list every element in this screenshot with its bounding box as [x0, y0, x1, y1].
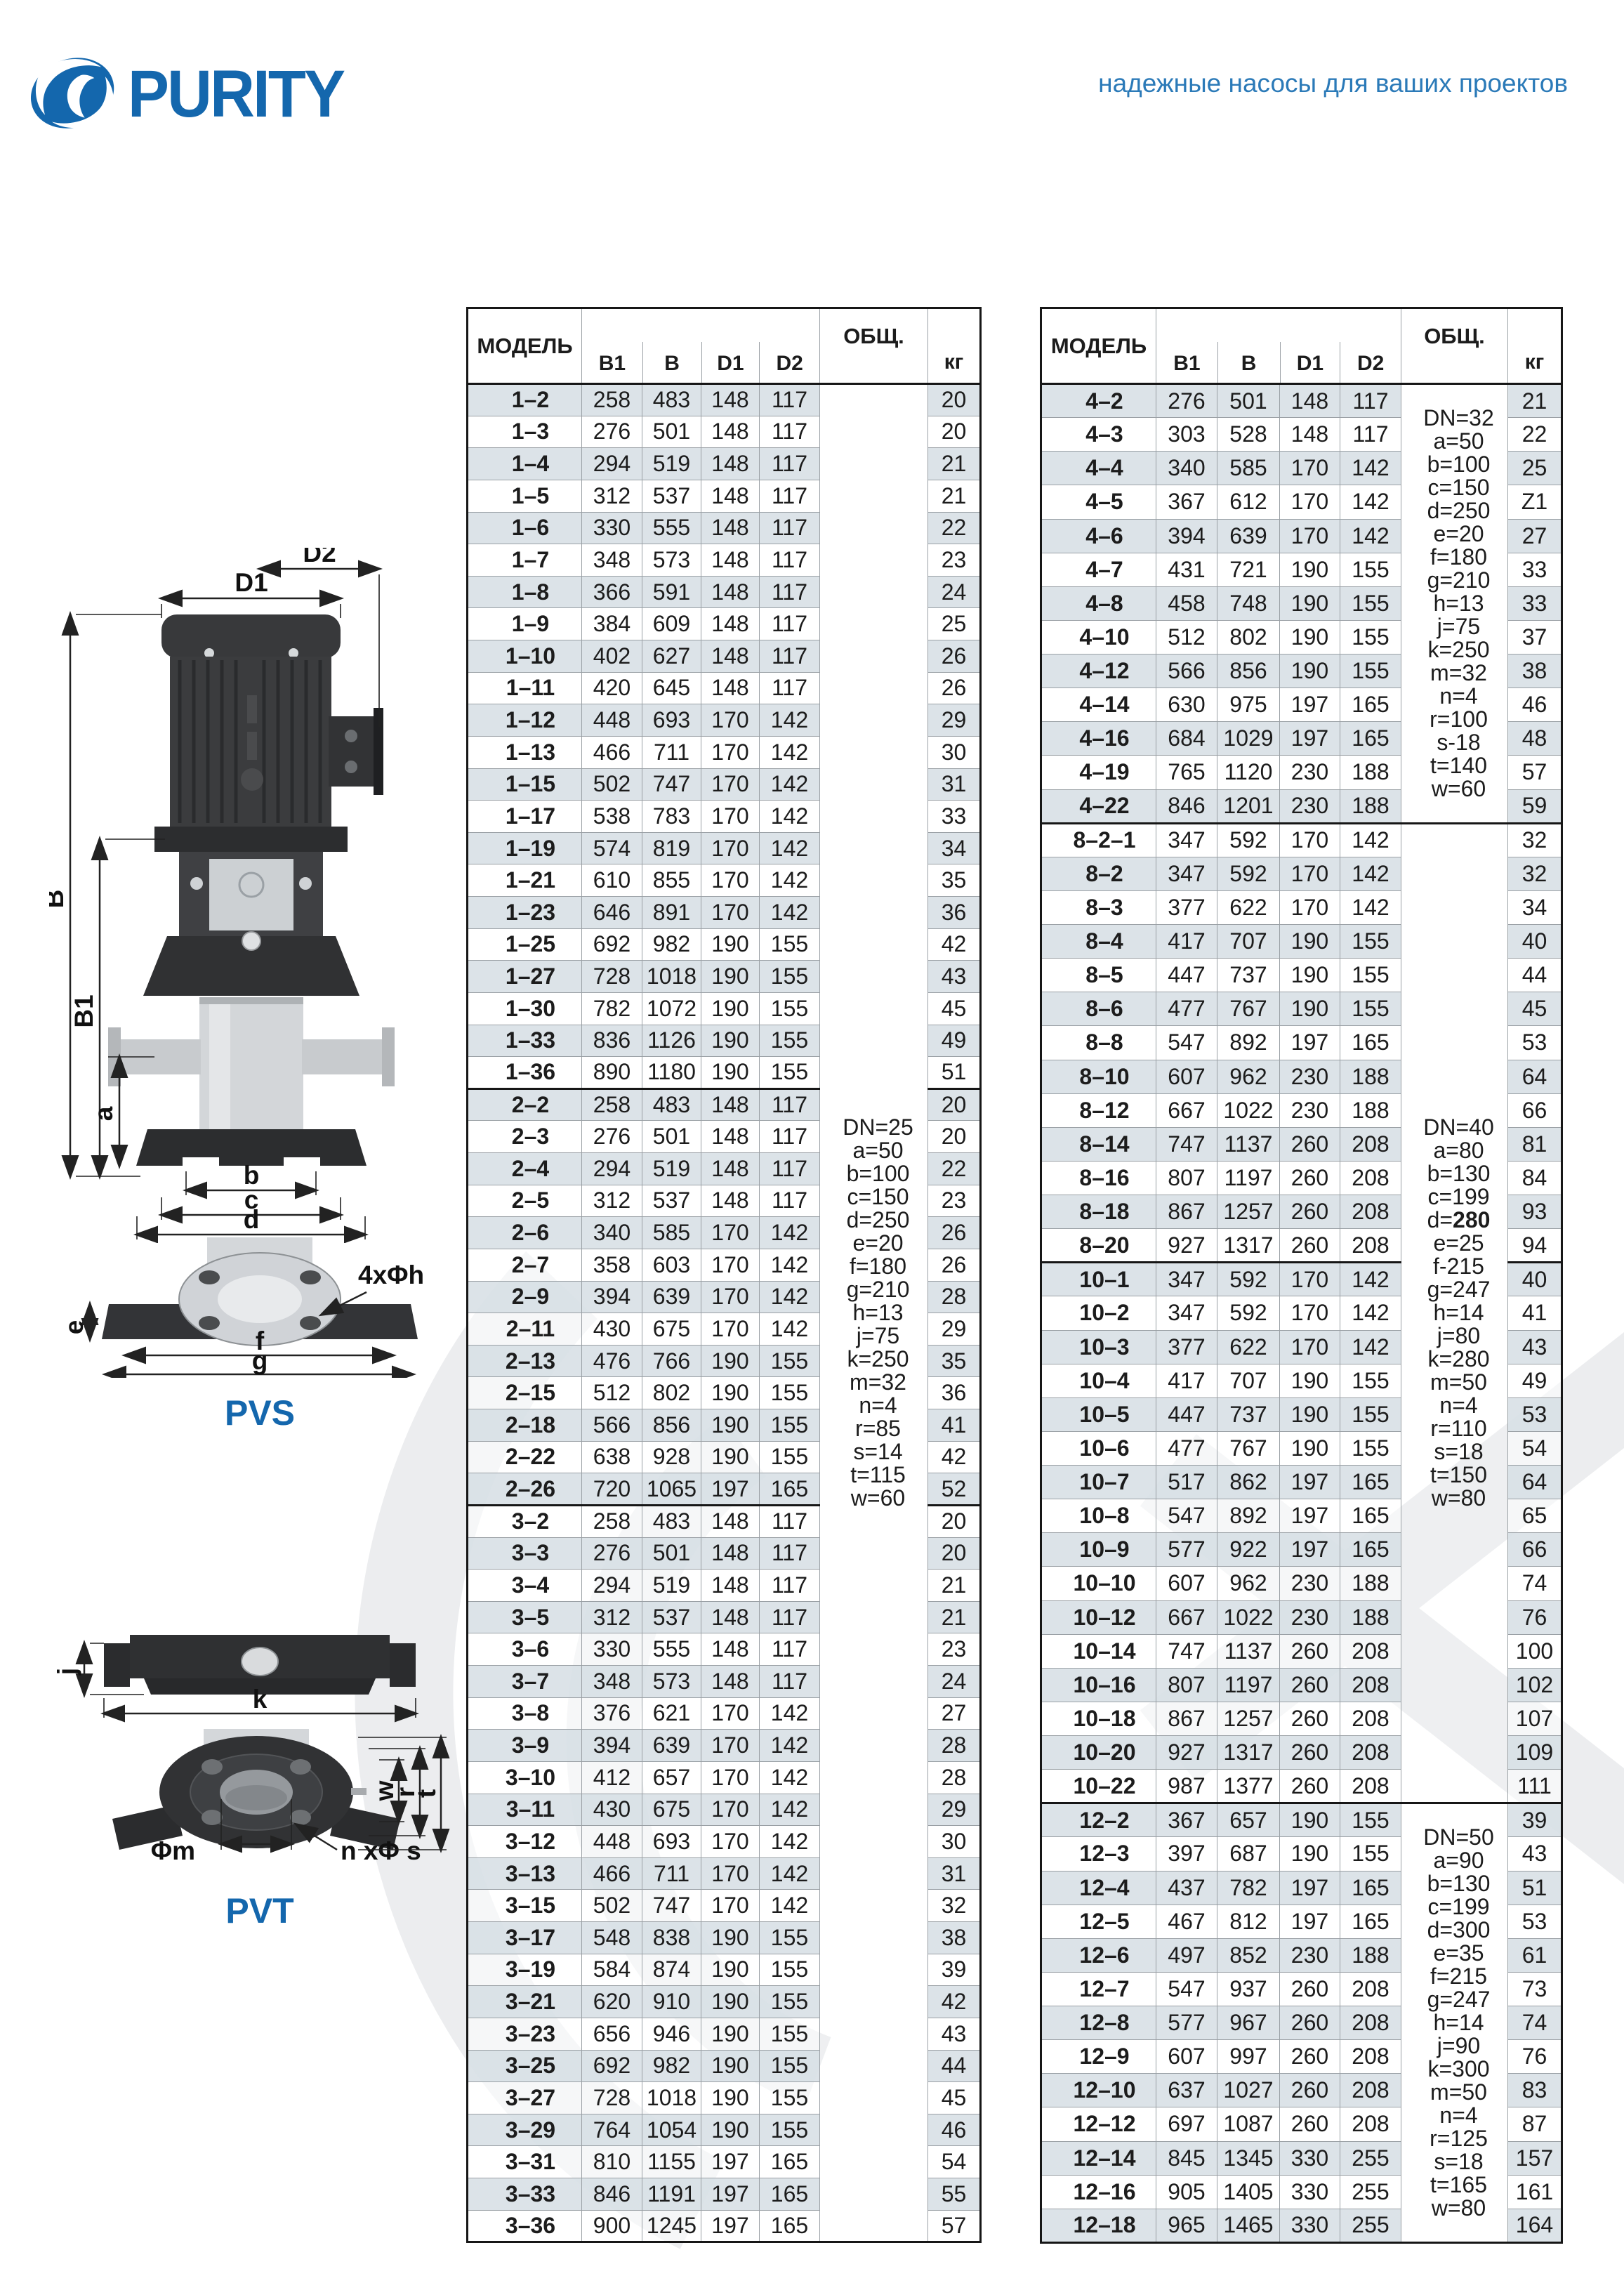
value-cell: 384 — [582, 608, 642, 640]
model-cell: 10–3 — [1041, 1330, 1156, 1364]
value-cell: 782 — [1217, 1871, 1280, 1905]
value-cell: 900 — [582, 2210, 642, 2242]
value-cell: 190 — [701, 928, 760, 961]
value-cell: 946 — [642, 2018, 701, 2050]
value-cell: 637 — [1156, 2074, 1217, 2107]
obsh-line: e=20 — [1401, 522, 1507, 546]
value-cell: 142 — [1340, 452, 1401, 485]
model-cell: 10–4 — [1041, 1364, 1156, 1397]
value-cell: 417 — [1156, 925, 1217, 959]
value-cell: 258 — [582, 384, 642, 416]
value-cell: 148 — [701, 1153, 760, 1185]
model-cell: 1–8 — [468, 576, 582, 608]
value-cell: 148 — [701, 480, 760, 512]
value-cell: 148 — [701, 1666, 760, 1698]
model-cell: 1–13 — [468, 736, 582, 768]
value-cell: 856 — [642, 1409, 701, 1442]
obsh-line: b=100 — [820, 1162, 927, 1185]
value-cell: 584 — [582, 1954, 642, 1986]
value-cell: 609 — [642, 608, 701, 640]
value-cell: 255 — [1340, 2175, 1401, 2209]
kg-cell: 29 — [928, 704, 981, 737]
kg-cell: 107 — [1508, 1702, 1562, 1735]
kg-cell: 26 — [928, 1249, 981, 1281]
table-row: 12–2367657190155DN=50a=90b=130c=199d=300… — [1041, 1803, 1562, 1837]
kg-cell: 161 — [1508, 2175, 1562, 2209]
value-cell: 448 — [582, 1826, 642, 1858]
value-cell: 260 — [1280, 1161, 1340, 1195]
obsh-line: d=300 — [1401, 1919, 1507, 1942]
value-cell: 1027 — [1217, 2074, 1280, 2107]
header-kg: кг — [1508, 308, 1562, 384]
model-cell: 8–18 — [1041, 1195, 1156, 1229]
value-cell: 767 — [1217, 1431, 1280, 1465]
value-cell: 1065 — [642, 1473, 701, 1506]
value-cell: 639 — [642, 1281, 701, 1313]
value-cell: 905 — [1156, 2175, 1217, 2209]
kg-cell: 93 — [1508, 1195, 1562, 1229]
kg-cell: 32 — [1508, 857, 1562, 890]
value-cell: 148 — [701, 1601, 760, 1633]
value-cell: 117 — [760, 640, 820, 673]
kg-cell: 35 — [928, 1345, 981, 1377]
value-cell: 165 — [760, 1473, 820, 1506]
value-cell: 547 — [1156, 1499, 1217, 1533]
model-cell: 4–2 — [1041, 384, 1156, 418]
value-cell: 197 — [701, 1473, 760, 1506]
value-cell: 630 — [1156, 688, 1217, 722]
value-cell: 517 — [1156, 1466, 1217, 1499]
value-cell: 646 — [582, 897, 642, 929]
pvs-caption: PVS — [49, 1393, 470, 1433]
model-cell: 1–17 — [468, 801, 582, 833]
value-cell: 155 — [1340, 553, 1401, 586]
kg-cell: 111 — [1508, 1770, 1562, 1803]
obsh-line: t=115 — [820, 1463, 927, 1487]
value-cell: 197 — [701, 2210, 760, 2242]
value-cell: 856 — [1217, 654, 1280, 688]
value-cell: 477 — [1156, 1431, 1217, 1465]
value-cell: 891 — [642, 897, 701, 929]
value-cell: 566 — [582, 1409, 642, 1442]
value-cell: 197 — [1280, 722, 1340, 756]
kg-cell: 83 — [1508, 2074, 1562, 2107]
model-cell: 12–7 — [1041, 1972, 1156, 2006]
value-cell: 190 — [701, 1025, 760, 1057]
value-cell: 312 — [582, 480, 642, 512]
value-cell: 585 — [642, 1217, 701, 1249]
value-cell: 347 — [1156, 1296, 1217, 1330]
model-cell: 1–23 — [468, 897, 582, 929]
brand-logo: PURITY — [27, 55, 359, 133]
value-cell: 627 — [642, 640, 701, 673]
value-cell: 117 — [760, 672, 820, 704]
value-cell: 997 — [1217, 2040, 1280, 2074]
value-cell: 117 — [760, 1505, 820, 1537]
value-cell: 117 — [760, 608, 820, 640]
value-cell: 170 — [701, 704, 760, 737]
value-cell: 188 — [1340, 756, 1401, 789]
value-cell: 477 — [1156, 992, 1217, 1026]
value-cell: 208 — [1340, 1668, 1401, 1702]
obsh-line: a=80 — [1401, 1139, 1507, 1162]
value-cell: 684 — [1156, 722, 1217, 756]
model-cell: 12–14 — [1041, 2141, 1156, 2175]
value-cell: 483 — [642, 1505, 701, 1537]
model-cell: 8–12 — [1041, 1093, 1156, 1127]
value-cell: 155 — [1340, 1431, 1401, 1465]
discharge-flange — [382, 1027, 395, 1086]
value-cell: 190 — [701, 1922, 760, 1954]
value-cell: 766 — [642, 1345, 701, 1377]
value-cell: 117 — [1340, 384, 1401, 418]
kg-cell: 100 — [1508, 1634, 1562, 1668]
value-cell: 230 — [1280, 789, 1340, 823]
value-cell: 260 — [1280, 1702, 1340, 1735]
obsh-line: m=32 — [1401, 662, 1507, 685]
obsh-line: r=125 — [1401, 2127, 1507, 2150]
value-cell: 155 — [760, 1057, 820, 1089]
header-b: B — [642, 342, 701, 383]
dim-label-bolt-holes-pvs: 4xΦh — [358, 1261, 424, 1289]
obsh-line: h=13 — [820, 1301, 927, 1324]
value-cell: 165 — [1340, 688, 1401, 722]
value-cell: 402 — [582, 640, 642, 673]
obsh-line: r=110 — [1401, 1417, 1507, 1440]
value-cell: 230 — [1280, 1060, 1340, 1093]
header-d2: D2 — [1340, 342, 1401, 383]
kg-cell: 22 — [928, 1153, 981, 1185]
dim-label-a: a — [89, 1106, 118, 1121]
kg-cell: 21 — [928, 1570, 981, 1602]
kg-cell: 27 — [1508, 519, 1562, 553]
value-cell: 155 — [760, 1409, 820, 1442]
value-cell: 330 — [1280, 2175, 1340, 2209]
value-cell: 230 — [1280, 1567, 1340, 1600]
value-cell: 721 — [1217, 553, 1280, 586]
value-cell: 312 — [582, 1601, 642, 1633]
value-cell: 747 — [1156, 1127, 1217, 1161]
value-cell: 967 — [1217, 2006, 1280, 2040]
table-header-row: МОДЕЛЬB1BD1D2ОБЩ.кг — [1041, 308, 1562, 384]
kg-cell: 28 — [928, 1761, 981, 1794]
model-cell: 8–20 — [1041, 1229, 1156, 1263]
value-cell: 340 — [582, 1217, 642, 1249]
value-cell: 692 — [582, 2050, 642, 2082]
value-cell: 190 — [1280, 959, 1340, 992]
value-cell: 303 — [1156, 418, 1217, 452]
value-cell: 1257 — [1217, 1702, 1280, 1735]
header-kg: кг — [928, 308, 981, 384]
value-cell: 170 — [701, 1313, 760, 1346]
obsh-line: k=250 — [820, 1348, 927, 1371]
obsh-line: h=13 — [1401, 592, 1507, 615]
value-cell: 330 — [1280, 2141, 1340, 2175]
kg-cell: 53 — [1508, 1905, 1562, 1938]
table-header-row: МОДЕЛЬB1BD1D2ОБЩ.кг — [468, 308, 981, 384]
model-cell: 2–9 — [468, 1281, 582, 1313]
kg-cell: 32 — [1508, 823, 1562, 857]
value-cell: 645 — [642, 672, 701, 704]
value-cell: 230 — [1280, 1093, 1340, 1127]
value-cell: 573 — [642, 1666, 701, 1698]
value-cell: 747 — [642, 768, 701, 801]
dim-label-d: d — [244, 1205, 260, 1234]
value-cell: 607 — [1156, 1060, 1217, 1093]
model-cell: 1–4 — [468, 448, 582, 480]
value-cell: 1201 — [1217, 789, 1280, 823]
kg-cell: 46 — [928, 2114, 981, 2146]
value-cell: 208 — [1340, 2006, 1401, 2040]
value-cell: 142 — [760, 897, 820, 929]
model-cell: 8–4 — [1041, 925, 1156, 959]
value-cell: 431 — [1156, 553, 1217, 586]
kg-cell: 42 — [928, 928, 981, 961]
obsh-line: DN=40 — [1401, 1116, 1507, 1139]
kg-cell: 87 — [1508, 2107, 1562, 2141]
obsh-line: s=18 — [1401, 1440, 1507, 1463]
value-cell: 155 — [1340, 992, 1401, 1026]
value-cell: 170 — [701, 832, 760, 864]
value-cell: 165 — [1340, 722, 1401, 756]
value-cell: 170 — [701, 1826, 760, 1858]
model-cell: 3–5 — [468, 1601, 582, 1633]
dim-label-b-height: B — [49, 890, 69, 909]
model-cell: 8–6 — [1041, 992, 1156, 1026]
value-cell: 962 — [1217, 1060, 1280, 1093]
model-cell: 4–14 — [1041, 688, 1156, 722]
kg-cell: 38 — [928, 1922, 981, 1954]
model-cell: 2–5 — [468, 1185, 582, 1217]
model-cell: 10–16 — [1041, 1668, 1156, 1702]
model-cell: 10–9 — [1041, 1533, 1156, 1567]
kg-cell: 53 — [1508, 1397, 1562, 1431]
value-cell: 622 — [1217, 1330, 1280, 1364]
value-cell: 1022 — [1217, 1093, 1280, 1127]
model-cell: 8–3 — [1041, 890, 1156, 924]
model-cell: 2–4 — [468, 1153, 582, 1185]
value-cell: 928 — [642, 1441, 701, 1473]
value-cell: 394 — [582, 1281, 642, 1313]
obsh-line: g=247 — [1401, 1278, 1507, 1301]
kg-cell: 41 — [1508, 1296, 1562, 1330]
kg-cell: 21 — [928, 448, 981, 480]
header-model: МОДЕЛЬ — [468, 308, 582, 384]
value-cell: 190 — [701, 2114, 760, 2146]
value-cell: 117 — [760, 448, 820, 480]
obsh-line: r=85 — [820, 1417, 927, 1440]
value-cell: 190 — [701, 1409, 760, 1442]
value-cell: 190 — [701, 1441, 760, 1473]
kg-cell: 48 — [1508, 722, 1562, 756]
value-cell: 1191 — [642, 2178, 701, 2211]
value-cell: 208 — [1340, 2074, 1401, 2107]
value-cell: 538 — [582, 801, 642, 833]
value-cell: 812 — [1217, 1905, 1280, 1938]
obsh-line: f-215 — [1401, 1255, 1507, 1278]
value-cell: 639 — [1217, 519, 1280, 553]
pvt-flange-diagram: Φm n xΦ s w r t — [49, 1729, 470, 1880]
value-cell: 502 — [582, 768, 642, 801]
value-cell: 657 — [1217, 1803, 1280, 1837]
value-cell: 142 — [760, 864, 820, 897]
value-cell: 170 — [701, 1281, 760, 1313]
value-cell: 260 — [1280, 2040, 1340, 2074]
value-cell: 155 — [1340, 1397, 1401, 1431]
value-cell: 170 — [701, 1730, 760, 1762]
value-cell: 846 — [1156, 789, 1217, 823]
value-cell: 155 — [760, 1986, 820, 2018]
value-cell: 165 — [1340, 1466, 1401, 1499]
model-cell: 2–26 — [468, 1473, 582, 1506]
value-cell: 1018 — [642, 961, 701, 993]
value-cell: 117 — [760, 1601, 820, 1633]
value-cell: 190 — [1280, 1837, 1340, 1871]
model-cell: 3–15 — [468, 1890, 582, 1922]
value-cell: 258 — [582, 1088, 642, 1121]
kg-cell: 38 — [1508, 654, 1562, 688]
value-cell: 165 — [1340, 1499, 1401, 1533]
value-cell: 483 — [642, 384, 701, 416]
model-cell: 2–2 — [468, 1088, 582, 1121]
obsh-line: s-18 — [1401, 731, 1507, 754]
value-cell: 148 — [1280, 384, 1340, 418]
dim-label-bolt-holes-pvt: n xΦ s — [341, 1836, 421, 1865]
value-cell: 190 — [1280, 654, 1340, 688]
value-cell: 1257 — [1217, 1195, 1280, 1229]
value-cell: 347 — [1156, 1263, 1217, 1296]
value-cell: 501 — [642, 416, 701, 448]
obsh-notes-cell: DN=50a=90b=130c=199d=300e=35f=215g=247h=… — [1401, 1803, 1508, 2243]
model-cell: 4–4 — [1041, 452, 1156, 485]
value-cell: 208 — [1340, 1634, 1401, 1668]
value-cell: 208 — [1340, 1127, 1401, 1161]
model-cell: 1–7 — [468, 544, 582, 577]
value-cell: 276 — [582, 1537, 642, 1570]
value-cell: 117 — [760, 416, 820, 448]
value-cell: 155 — [760, 2082, 820, 2114]
obsh-line: t=165 — [1401, 2173, 1507, 2197]
value-cell: 1126 — [642, 1025, 701, 1057]
value-cell: 573 — [642, 544, 701, 577]
model-cell: 1–21 — [468, 864, 582, 897]
value-cell: 208 — [1340, 1161, 1401, 1195]
value-cell: 394 — [1156, 519, 1217, 553]
obsh-notes-cell: DN=40a=80b=130c=199d=280e=25f-215g=247h=… — [1401, 823, 1508, 1803]
value-cell: 430 — [582, 1313, 642, 1346]
value-cell: 358 — [582, 1249, 642, 1281]
kg-cell: 29 — [928, 1794, 981, 1826]
value-cell: 188 — [1340, 1600, 1401, 1634]
model-cell: 2–15 — [468, 1377, 582, 1409]
value-cell: 855 — [642, 864, 701, 897]
value-cell: 1137 — [1217, 1634, 1280, 1668]
value-cell: 448 — [582, 704, 642, 737]
kg-cell: 66 — [1508, 1533, 1562, 1567]
value-cell: 376 — [582, 1697, 642, 1730]
value-cell: 607 — [1156, 2040, 1217, 2074]
pvt-base-diagram: j k — [49, 1628, 470, 1726]
model-cell: 1–27 — [468, 961, 582, 993]
value-cell: 117 — [760, 1666, 820, 1698]
value-cell: 117 — [760, 1633, 820, 1666]
value-cell: 675 — [642, 1313, 701, 1346]
obsh-line: a=50 — [1401, 430, 1507, 453]
dimension-table-pvs-1-2-3: МОДЕЛЬB1BD1D2ОБЩ.кг1–2258483148117DN=25a… — [466, 307, 982, 2243]
obsh-line: j=90 — [1401, 2034, 1507, 2058]
kg-cell: 57 — [1508, 756, 1562, 789]
kg-cell: 64 — [1508, 1466, 1562, 1499]
model-cell: 4–8 — [1041, 586, 1156, 620]
value-cell: 170 — [1280, 1296, 1340, 1330]
kg-cell: 26 — [928, 640, 981, 673]
value-cell: 117 — [760, 544, 820, 577]
value-cell: 697 — [1156, 2107, 1217, 2141]
value-cell: 348 — [582, 544, 642, 577]
value-cell: 142 — [1340, 890, 1401, 924]
value-cell: 170 — [701, 1761, 760, 1794]
value-cell: 1137 — [1217, 1127, 1280, 1161]
value-cell: 190 — [701, 2082, 760, 2114]
value-cell: 190 — [701, 1986, 760, 2018]
obsh-line: g=210 — [820, 1278, 927, 1301]
model-cell: 1–19 — [468, 832, 582, 864]
obsh-line: DN=50 — [1401, 1826, 1507, 1849]
header-d1: D1 — [1280, 342, 1340, 383]
kg-cell: 23 — [928, 1633, 981, 1666]
kg-cell: 24 — [928, 576, 981, 608]
value-cell: 142 — [1340, 1263, 1401, 1296]
value-cell: 687 — [1217, 1837, 1280, 1871]
obsh-line: c=199 — [1401, 1895, 1507, 1919]
model-cell: 12–4 — [1041, 1871, 1156, 1905]
kg-cell: 57 — [928, 2210, 981, 2242]
model-cell: 12–3 — [1041, 1837, 1156, 1871]
header-d1: D1 — [701, 342, 760, 383]
value-cell: 874 — [642, 1954, 701, 1986]
value-cell: 142 — [1340, 857, 1401, 890]
value-cell: 807 — [1156, 1161, 1217, 1195]
value-cell: 255 — [1340, 2209, 1401, 2242]
obsh-line: e=35 — [1401, 1942, 1507, 1965]
value-cell: 566 — [1156, 654, 1217, 688]
value-cell: 148 — [701, 1185, 760, 1217]
value-cell: 148 — [701, 512, 760, 544]
kg-cell: 30 — [928, 736, 981, 768]
model-cell: 10–12 — [1041, 1600, 1156, 1634]
model-cell: 10–2 — [1041, 1296, 1156, 1330]
kg-cell: 37 — [1508, 620, 1562, 654]
value-cell: 892 — [1217, 1026, 1280, 1060]
model-cell: 1–2 — [468, 384, 582, 416]
value-cell: 190 — [1280, 925, 1340, 959]
value-cell: 1018 — [642, 2082, 701, 2114]
value-cell: 1465 — [1217, 2209, 1280, 2242]
value-cell: 1377 — [1217, 1770, 1280, 1803]
value-cell: 519 — [642, 448, 701, 480]
value-cell: 846 — [582, 2178, 642, 2211]
value-cell: 188 — [1340, 1938, 1401, 1972]
obsh-notes-cell: DN=32a=50b=100c=150d=250e=20f=180g=210h=… — [1401, 384, 1508, 824]
obsh-line: s=18 — [1401, 2150, 1507, 2173]
value-cell: 148 — [701, 640, 760, 673]
value-cell: 862 — [1217, 1466, 1280, 1499]
value-cell: 622 — [1217, 890, 1280, 924]
value-cell: 155 — [1340, 586, 1401, 620]
value-cell: 783 — [642, 801, 701, 833]
value-cell: 155 — [760, 1922, 820, 1954]
obsh-line: f=180 — [1401, 546, 1507, 569]
